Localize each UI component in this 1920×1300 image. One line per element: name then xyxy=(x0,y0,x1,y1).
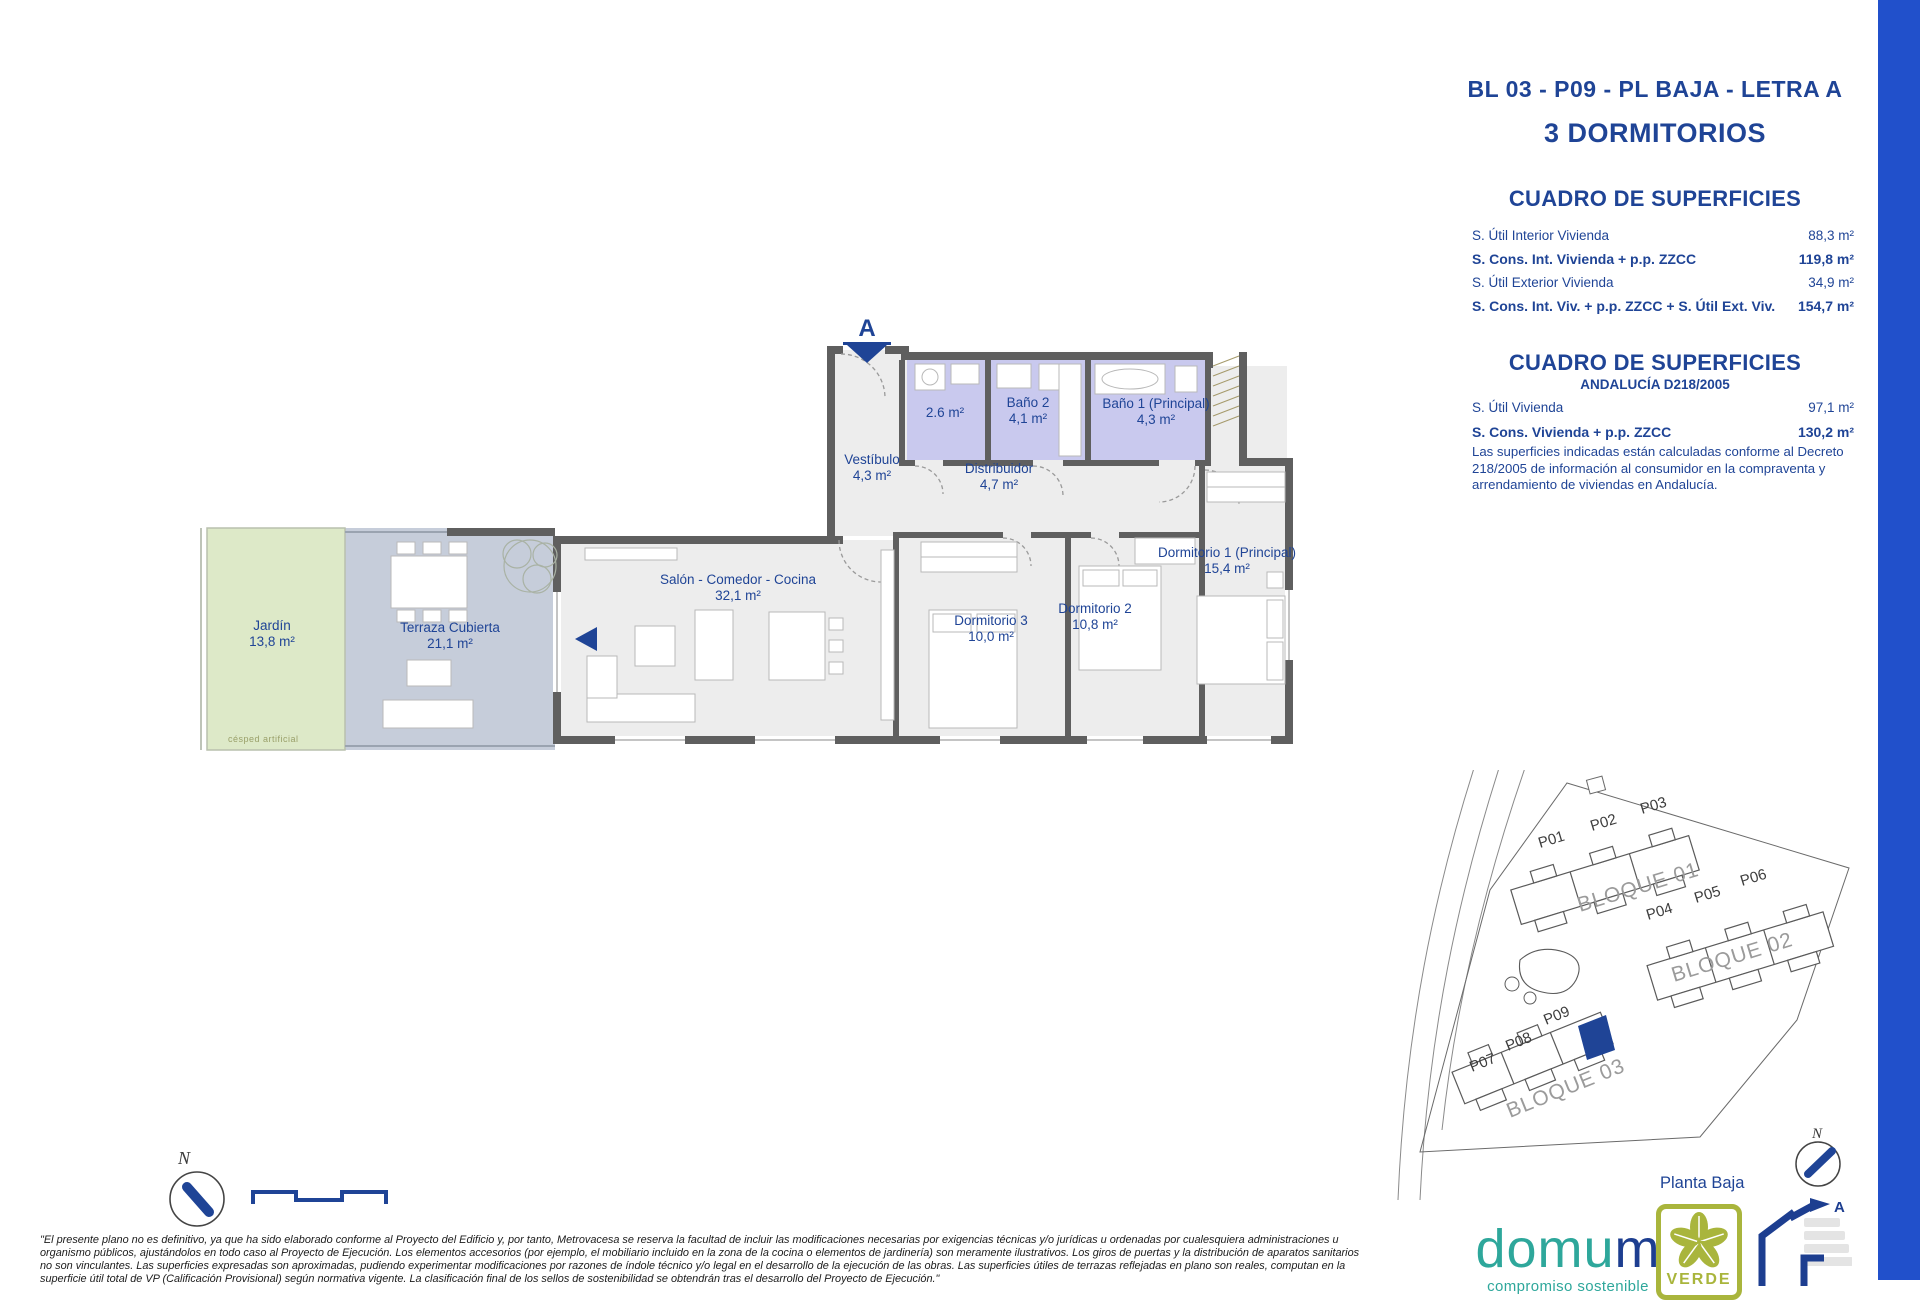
floor-level-label: Planta Baja xyxy=(1660,1174,1744,1193)
energy-rating-letter: A xyxy=(1834,1199,1845,1216)
svg-text:P06: P06 xyxy=(1738,866,1769,890)
utility-structure xyxy=(1586,776,1605,794)
site-compass xyxy=(1796,1142,1840,1186)
domum-logo: domum compromiso sostenible xyxy=(1458,1222,1678,1295)
siteplan-drawing: P01 P02 P03 P04 P05 P06 P07 P08 P09 BLOQ… xyxy=(1380,770,1860,1200)
row-label: S. Útil Exterior Vivienda xyxy=(1472,275,1614,290)
section-letter: A xyxy=(858,315,875,342)
svg-text:P02: P02 xyxy=(1588,811,1619,835)
table-row: S. Cons. Int. Viv. + p.p. ZZCC + S. Útil… xyxy=(1472,298,1854,314)
row-label: S. Cons. Int. Viv. + p.p. ZZCC + S. Útil… xyxy=(1472,298,1775,314)
room-label-jardin: Jardín 13,8 m² xyxy=(249,618,295,650)
andalucia-table-title: CUADRO DE SUPERFICIES xyxy=(1455,350,1855,376)
room-label-bano2: Baño 2 4,1 m² xyxy=(1007,395,1050,427)
unit-labels: P01 P02 P03 P04 P05 P06 P07 P08 P09 xyxy=(1467,794,1769,1076)
row-label: S. Cons. Vivienda + p.p. ZZCC xyxy=(1472,424,1671,440)
room-label-dormitorio2: Dormitorio 2 10,8 m² xyxy=(1058,601,1132,633)
table-row: S. Útil Interior Vivienda 88,3 m² xyxy=(1472,228,1854,243)
room-label-bano1: Baño 1 (Principal) 4,3 m² xyxy=(1102,396,1209,428)
compass-icon xyxy=(166,1168,230,1232)
site-north-label: N xyxy=(1812,1126,1822,1143)
svg-text:P01: P01 xyxy=(1536,828,1567,852)
floorplan-drawing: A xyxy=(195,310,1300,765)
table-row: S. Útil Exterior Vivienda 34,9 m² xyxy=(1472,275,1854,290)
pool xyxy=(1505,949,1579,1004)
page-subtitle: 3 DORMITORIOS xyxy=(1455,118,1855,149)
svg-text:P03: P03 xyxy=(1638,794,1669,818)
logo-text-blue: m xyxy=(1615,1219,1661,1279)
row-value: 130,2 m² xyxy=(1798,424,1854,440)
svg-text:P09: P09 xyxy=(1541,1003,1572,1029)
row-value: 34,9 m² xyxy=(1808,275,1854,290)
disclaimer-line: "El presente plano no es definitivo, ya … xyxy=(40,1234,1339,1246)
row-value: 119,8 m² xyxy=(1799,251,1854,267)
scale-bar xyxy=(250,1186,395,1212)
room-label-dormitorio3: Dormitorio 3 10,0 m² xyxy=(954,613,1028,645)
page-accent-sidebar xyxy=(1878,0,1920,1280)
page-title: BL 03 - P09 - PL BAJA - LETRA A xyxy=(1455,76,1855,103)
svg-text:P04: P04 xyxy=(1644,900,1675,924)
andalucia-table-subtitle: ANDALUCÍA D218/2005 xyxy=(1455,377,1855,392)
disclaimer-line: superficie útil total de VP (Calificació… xyxy=(40,1273,939,1285)
room-label-distribuidor: Distribuidor 4,7 m² xyxy=(965,461,1033,493)
compass-north-label: N xyxy=(178,1148,190,1169)
svg-text:P05: P05 xyxy=(1692,883,1723,907)
verde-leaf-icon xyxy=(1661,1212,1737,1268)
logo-text-teal: domu xyxy=(1475,1219,1614,1279)
andalucia-note: Las superficies indicadas están calculad… xyxy=(1472,444,1850,494)
row-label: S. Cons. Int. Vivienda + p.p. ZZCC xyxy=(1472,251,1696,267)
energy-rating-house-icon: A xyxy=(1752,1196,1852,1286)
room-label-cuarto: 2.6 m² xyxy=(926,405,964,421)
floorplan-sheet: { "header": { "unit_title": "BL 03 - P09… xyxy=(0,0,1920,1280)
room-label-dormitorio1: Dormitorio 1 (Principal) 15,4 m² xyxy=(1158,545,1296,577)
room-label-terraza: Terraza Cubierta 21,1 m² xyxy=(400,620,500,652)
room-label-salon: Salón - Comedor - Cocina 32,1 m² xyxy=(660,572,816,604)
table-row: S. Cons. Vivienda + p.p. ZZCC 130,2 m² xyxy=(1472,424,1854,440)
row-value: 88,3 m² xyxy=(1808,228,1854,243)
disclaimer-line: no son vinculantes. Las superficies expr… xyxy=(40,1260,1345,1272)
row-label: S. Útil Interior Vivienda xyxy=(1472,228,1609,243)
row-label: S. Útil Vivienda xyxy=(1472,400,1563,415)
disclaimer-line: organismo públicos, ajustándolos en todo… xyxy=(40,1247,1359,1259)
table-row: S. Útil Vivienda 97,1 m² xyxy=(1472,400,1854,415)
verde-certificate-badge: VERDE xyxy=(1656,1204,1742,1300)
row-value: 154,7 m² xyxy=(1798,298,1854,314)
surface-table-title: CUADRO DE SUPERFICIES xyxy=(1455,186,1855,212)
room-label-vestibulo: Vestíbulo 4,3 m² xyxy=(844,452,900,484)
garden-surface-note: césped artificial xyxy=(228,734,299,744)
table-row: S. Cons. Int. Vivienda + p.p. ZZCC 119,8… xyxy=(1472,251,1854,267)
logo-tagline: compromiso sostenible xyxy=(1458,1278,1678,1295)
verde-label: VERDE xyxy=(1661,1271,1737,1289)
row-value: 97,1 m² xyxy=(1808,400,1854,415)
arrow-head xyxy=(1810,1198,1830,1212)
